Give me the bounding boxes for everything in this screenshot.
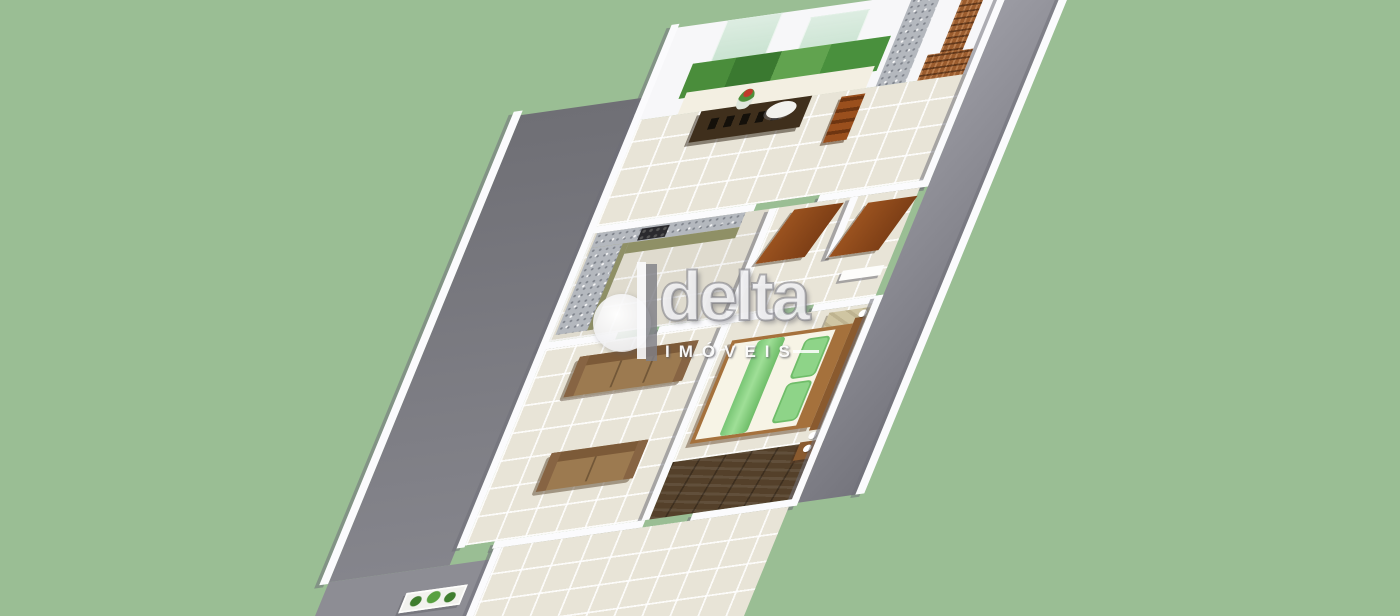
scene-canvas: delta IMÓVEIS [0, 0, 1400, 616]
